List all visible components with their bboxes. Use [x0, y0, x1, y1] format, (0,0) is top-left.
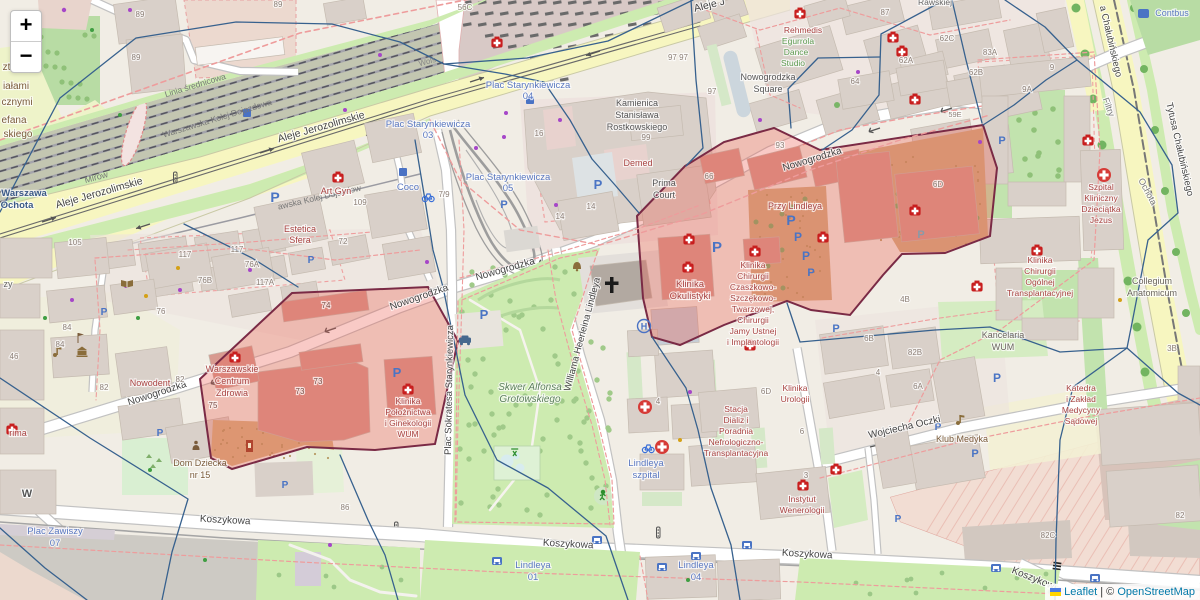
svg-text:97: 97 [708, 87, 717, 96]
svg-text:i Zakład: i Zakład [1066, 394, 1096, 404]
svg-text:73: 73 [296, 387, 305, 396]
svg-text:P: P [802, 249, 810, 263]
svg-text:Centrum: Centrum [215, 376, 250, 386]
svg-text:62B: 62B [969, 68, 983, 77]
svg-text:Warszawskie: Warszawskie [206, 364, 259, 374]
svg-text:P: P [480, 307, 489, 322]
svg-text:97 97: 97 97 [668, 53, 689, 62]
svg-text:117: 117 [179, 250, 192, 259]
svg-text:86: 86 [341, 503, 350, 512]
svg-text:99: 99 [642, 133, 651, 142]
svg-text:75: 75 [209, 401, 218, 410]
svg-text:Katedra: Katedra [1066, 383, 1096, 393]
svg-text:P: P [971, 448, 978, 460]
svg-text:105: 105 [68, 238, 82, 247]
svg-text:04: 04 [523, 91, 534, 102]
svg-text:4: 4 [876, 368, 881, 377]
svg-text:i Ginekologii: i Ginekologii [385, 418, 431, 428]
svg-text:Nefrologiczno-: Nefrologiczno- [709, 437, 764, 447]
svg-text:Rawskiej: Rawskiej [918, 0, 952, 7]
svg-text:117A: 117A [256, 278, 275, 287]
svg-text:rima: rima [9, 428, 27, 438]
svg-text:56C: 56C [458, 3, 473, 12]
svg-text:Okulistyki: Okulistyki [670, 291, 711, 302]
svg-text:84: 84 [63, 323, 72, 332]
svg-text:Sądowej: Sądowej [1065, 416, 1098, 426]
svg-text:Court: Court [653, 190, 676, 200]
svg-text:82C: 82C [1041, 531, 1056, 540]
svg-text:P: P [101, 307, 108, 318]
svg-text:Kliniczny: Kliniczny [1084, 193, 1118, 203]
svg-text:Collegium: Collegium [1132, 276, 1172, 286]
svg-text:82B: 82B [908, 348, 922, 357]
svg-text:P: P [594, 177, 603, 192]
svg-text:62A: 62A [899, 56, 914, 65]
svg-text:3: 3 [804, 471, 809, 480]
svg-text:9A: 9A [1022, 85, 1032, 94]
svg-text:Dializ i: Dializ i [723, 415, 748, 425]
svg-text:Sfera: Sfera [289, 235, 311, 245]
svg-text:05: 05 [503, 183, 514, 194]
svg-text:P: P [832, 323, 839, 335]
svg-text:P: P [993, 371, 1001, 385]
svg-text:6A: 6A [913, 382, 923, 391]
svg-text:Urologii: Urologii [781, 394, 810, 404]
svg-text:Plac Zawiszy: Plac Zawiszy [27, 526, 83, 537]
svg-text:Klinika: Klinika [395, 396, 420, 406]
svg-text:16: 16 [535, 129, 544, 138]
svg-text:Medycyny: Medycyny [1062, 405, 1101, 415]
svg-text:89: 89 [136, 10, 145, 19]
svg-text:Dom Dziecka: Dom Dziecka [173, 458, 227, 468]
svg-text:14: 14 [556, 212, 565, 221]
svg-text:Contbus: Contbus [1155, 8, 1189, 18]
svg-text:Przy Lindleya: Przy Lindleya [768, 201, 822, 211]
svg-text:76: 76 [157, 307, 166, 316]
svg-text:P: P [786, 212, 795, 228]
svg-text:Klinika: Klinika [740, 260, 765, 270]
svg-text:Ogólnej: Ogólnej [1025, 277, 1054, 287]
svg-text:nr 15: nr 15 [190, 470, 211, 480]
svg-text:Lindleya: Lindleya [515, 560, 551, 571]
svg-text:W: W [22, 488, 33, 500]
svg-text:4B: 4B [900, 295, 910, 304]
svg-text:64: 64 [851, 77, 860, 86]
svg-text:Art Gyn: Art Gyn [321, 186, 352, 196]
svg-text:Plac Starynkiewicza: Plac Starynkiewicza [386, 119, 471, 130]
svg-text:Instytut: Instytut [788, 494, 816, 504]
svg-text:6: 6 [800, 427, 805, 436]
svg-text:Prima: Prima [652, 178, 676, 188]
svg-text:Nowogrodzka: Nowogrodzka [740, 72, 795, 82]
svg-text:Jamy Ustnej: Jamy Ustnej [730, 326, 777, 336]
svg-text:P: P [157, 428, 164, 439]
svg-text:Poradnia: Poradnia [719, 426, 753, 436]
svg-text:04: 04 [691, 572, 702, 583]
svg-text:Czaszkowo-: Czaszkowo- [730, 282, 776, 292]
svg-text:Szpital: Szpital [1088, 182, 1114, 192]
svg-text:82: 82 [100, 383, 109, 392]
svg-text:Transplantacyjnej: Transplantacyjnej [1007, 288, 1073, 298]
svg-text:P: P [500, 199, 507, 211]
svg-text:Klub Medyka: Klub Medyka [936, 434, 988, 444]
svg-text:Anatomicum: Anatomicum [1127, 288, 1177, 298]
svg-text:73: 73 [314, 377, 323, 386]
svg-text:Szczękowo-: Szczękowo- [730, 293, 776, 303]
svg-text:3B: 3B [1167, 344, 1177, 353]
svg-text:Plac Starynkiewicza: Plac Starynkiewicza [466, 172, 551, 183]
svg-text:Nowodent: Nowodent [130, 378, 171, 388]
svg-text:59E: 59E [948, 110, 961, 119]
svg-text:93: 93 [776, 141, 785, 150]
svg-text:Chirurgii: Chirurgii [737, 271, 769, 281]
svg-text:83A: 83A [983, 48, 998, 57]
svg-text:cznymi: cznymi [1, 97, 32, 108]
svg-text:Położnictwa: Położnictwa [385, 407, 431, 417]
svg-text:07: 07 [50, 538, 61, 549]
svg-text:iałami: iałami [3, 81, 29, 92]
svg-text:Plac Sokratesa Starynkiewicza: Plac Sokratesa Starynkiewicza [443, 324, 456, 455]
svg-text:i Implantologii: i Implantologii [727, 337, 779, 347]
svg-text:6D: 6D [761, 387, 771, 396]
svg-text:WUM: WUM [397, 429, 418, 439]
svg-text:Kancelaria: Kancelaria [982, 330, 1025, 340]
svg-text:Jezus: Jezus [1090, 215, 1112, 225]
svg-text:Zdrowia: Zdrowia [216, 388, 248, 398]
svg-text:Square: Square [753, 84, 782, 94]
svg-text:82: 82 [1176, 511, 1185, 520]
svg-text:Klinika: Klinika [782, 383, 807, 393]
svg-text:Transplantacyjna: Transplantacyjna [704, 448, 769, 458]
svg-text:66: 66 [705, 172, 714, 181]
svg-text:WUM: WUM [992, 342, 1015, 352]
svg-text:P: P [712, 239, 722, 256]
svg-text:P: P [282, 480, 289, 491]
svg-text:Egurrola: Egurrola [782, 36, 814, 46]
svg-text:P: P [895, 514, 902, 525]
svg-text:Twarzowej,: Twarzowej, [732, 304, 775, 314]
svg-text:Ochota: Ochota [1, 200, 34, 211]
svg-text:P: P [917, 229, 924, 241]
svg-text:76B: 76B [198, 276, 212, 285]
svg-text:Klinika: Klinika [676, 279, 705, 290]
svg-text:zy: zy [4, 279, 14, 289]
svg-text:03: 03 [423, 130, 434, 141]
svg-text:89: 89 [274, 0, 283, 9]
svg-text:Lindleya: Lindleya [628, 458, 664, 469]
svg-text:szpital: szpital [633, 470, 660, 481]
svg-text:14: 14 [587, 202, 596, 211]
svg-text:62C: 62C [940, 34, 955, 43]
svg-text:87: 87 [881, 8, 890, 17]
svg-text:Lindleya: Lindleya [678, 560, 714, 571]
svg-text:4: 4 [656, 397, 661, 406]
svg-text:01: 01 [528, 572, 539, 583]
svg-text:46: 46 [10, 352, 19, 361]
svg-text:Warszawa: Warszawa [1, 188, 47, 199]
svg-text:Rostkowskiego: Rostkowskiego [607, 122, 668, 132]
svg-text:6D: 6D [933, 180, 943, 189]
svg-text:Coco: Coco [397, 182, 419, 193]
svg-text:9: 9 [1050, 63, 1055, 72]
svg-text:P: P [393, 365, 402, 380]
svg-text:Estetica: Estetica [284, 224, 316, 234]
svg-text:P: P [807, 267, 814, 279]
svg-text:76A: 76A [245, 260, 260, 269]
svg-text:P: P [308, 255, 315, 266]
svg-text:7/9: 7/9 [438, 190, 450, 199]
svg-text:Studio: Studio [781, 58, 805, 68]
svg-text:109: 109 [353, 198, 367, 207]
svg-text:84: 84 [56, 340, 65, 349]
svg-text:82: 82 [176, 375, 185, 384]
svg-text:efana: efana [1, 115, 26, 126]
svg-text:H: H [641, 322, 648, 332]
svg-text:Stanisława: Stanisława [615, 110, 659, 120]
svg-text:Grotowskiego: Grotowskiego [499, 394, 561, 405]
svg-text:Wenerologii: Wenerologii [780, 505, 825, 515]
svg-text:89: 89 [132, 53, 141, 62]
svg-text:Stacja: Stacja [724, 404, 748, 414]
svg-text:Dzieciątka: Dzieciątka [1081, 204, 1120, 214]
svg-text:Chirurgii: Chirurgii [737, 315, 769, 325]
svg-text:Chirurgii: Chirurgii [1024, 266, 1056, 276]
svg-text:Demed: Demed [623, 158, 652, 168]
svg-text:P: P [998, 135, 1005, 147]
svg-text:72: 72 [339, 237, 348, 246]
svg-text:6B: 6B [864, 334, 874, 343]
svg-text:Plac Starynkiewicza: Plac Starynkiewicza [486, 80, 571, 91]
svg-text:P: P [794, 230, 802, 244]
svg-text:Kamienica: Kamienica [616, 98, 658, 108]
svg-text:Skwer Alfonsa: Skwer Alfonsa [498, 382, 562, 393]
svg-text:117: 117 [231, 245, 244, 254]
svg-text:skiego: skiego [4, 129, 33, 140]
svg-text:Dance: Dance [784, 47, 809, 57]
svg-text:74: 74 [322, 301, 331, 310]
svg-text:Rehmedis: Rehmedis [784, 25, 822, 35]
svg-text:Klinika: Klinika [1027, 255, 1052, 265]
